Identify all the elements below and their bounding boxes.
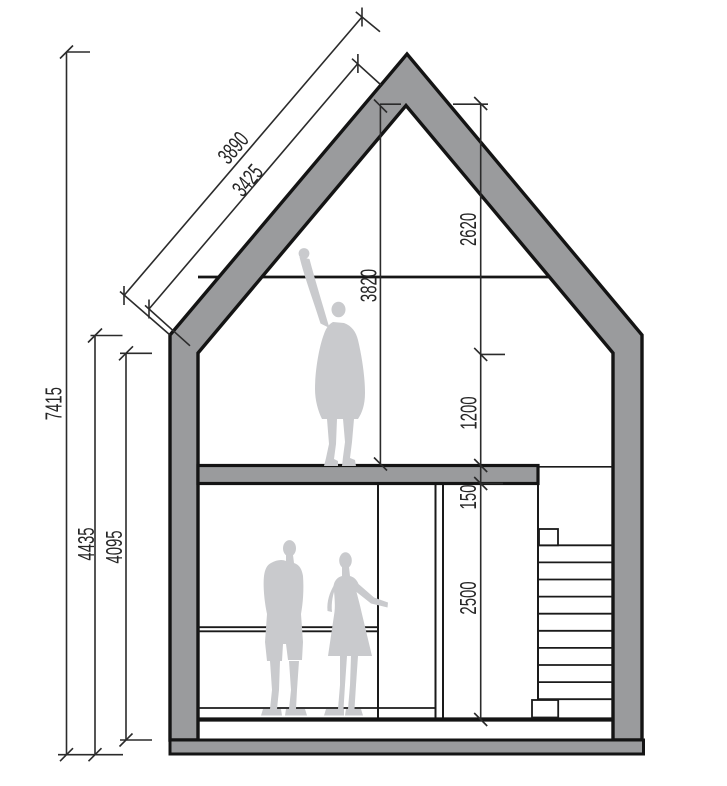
svg-text:7415: 7415: [41, 387, 67, 420]
svg-text:150: 150: [456, 484, 482, 509]
svg-text:4095: 4095: [102, 530, 128, 563]
svg-text:3820: 3820: [356, 269, 382, 302]
svg-text:2500: 2500: [456, 581, 482, 614]
svg-text:1200: 1200: [456, 396, 482, 429]
svg-text:2620: 2620: [456, 213, 482, 246]
svg-text:4435: 4435: [74, 527, 100, 560]
